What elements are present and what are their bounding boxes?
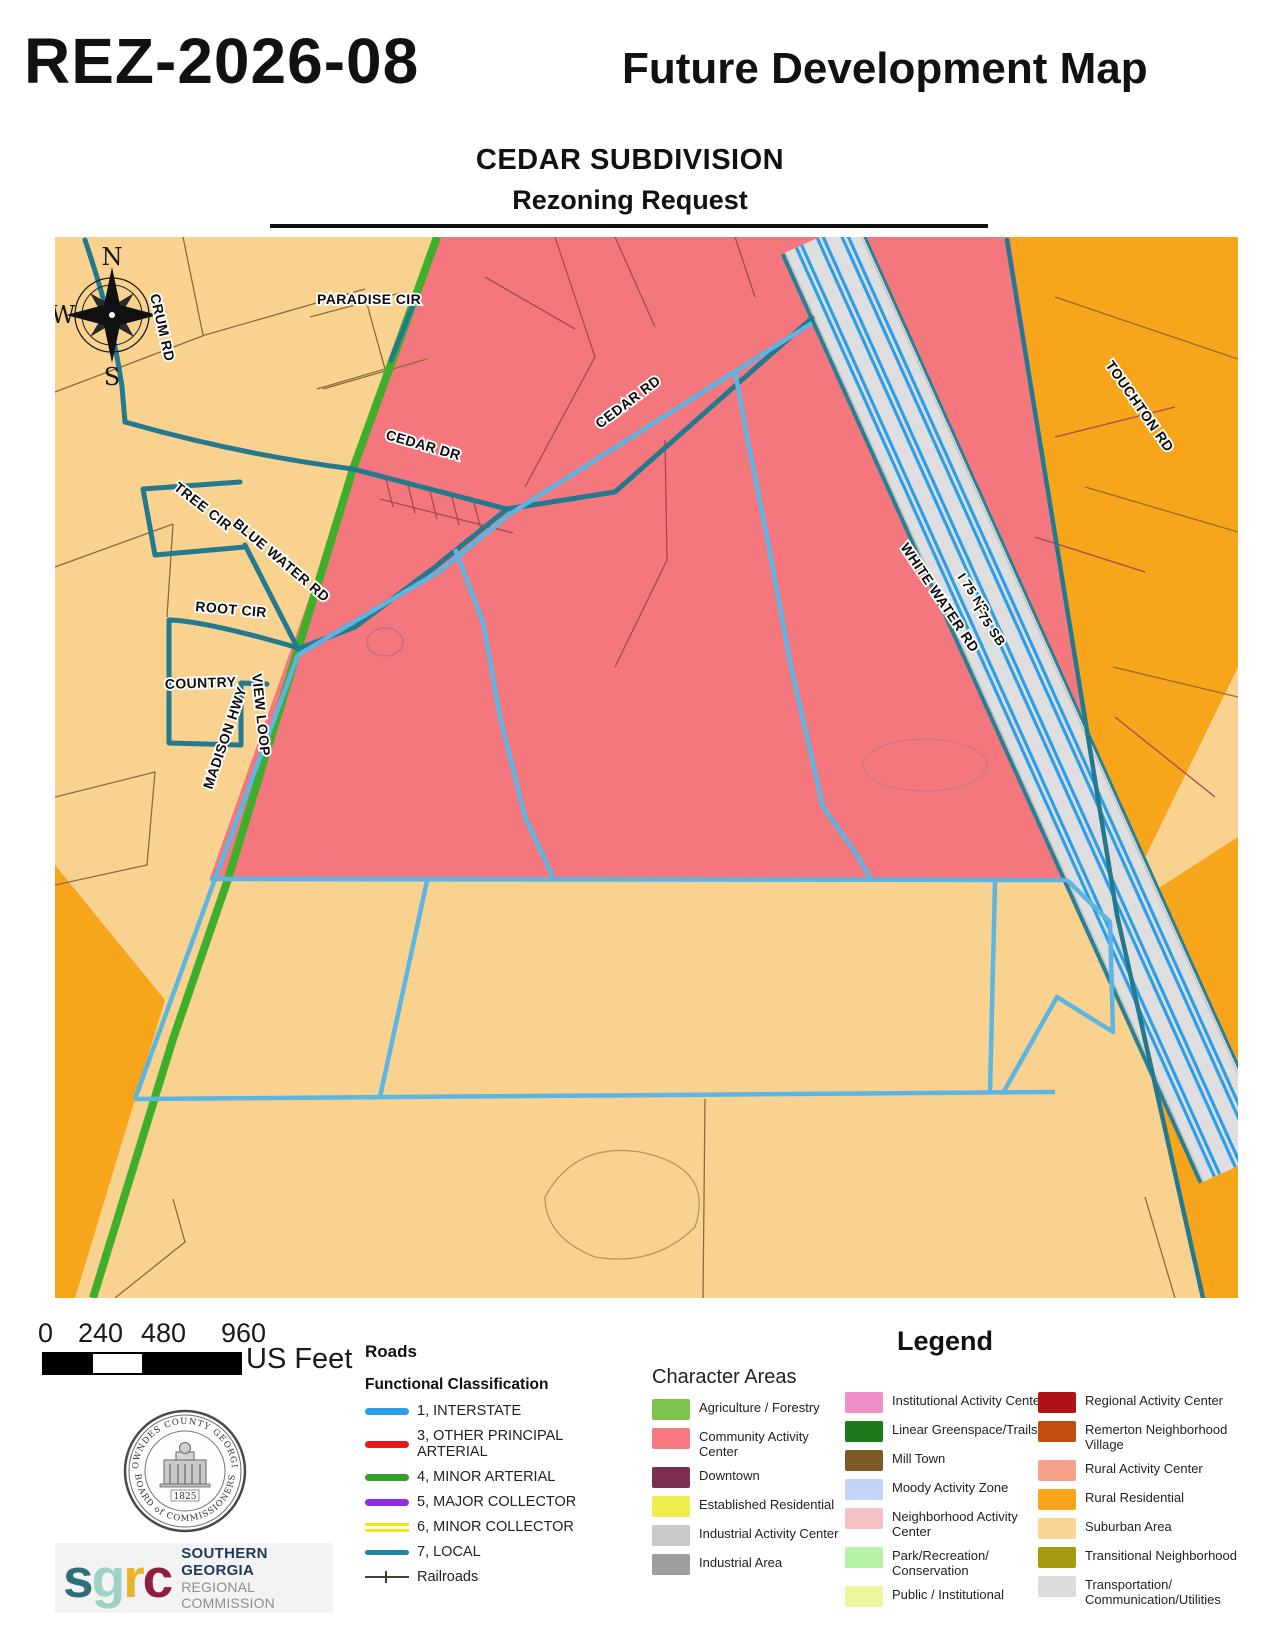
legend-item: Rural Activity Center bbox=[1038, 1460, 1258, 1481]
scale-segment bbox=[93, 1354, 142, 1373]
scale-tick: 480 bbox=[141, 1318, 186, 1349]
color-swatch bbox=[1038, 1518, 1076, 1539]
future-development-map: N S W PARADISE CIR CRUM RD CEDAR DR CEDA… bbox=[55, 237, 1238, 1298]
label-paradise-cir: PARADISE CIR bbox=[317, 291, 421, 307]
railroads-line-swatch bbox=[365, 1576, 409, 1578]
legend-item: Industrial Area bbox=[652, 1554, 842, 1575]
legend-row-minor-collector: 6, MINOR COLLECTOR bbox=[365, 1519, 625, 1535]
legend-row-railroads: Railroads bbox=[365, 1569, 625, 1585]
interstate-line-swatch bbox=[365, 1408, 409, 1415]
sgrc-name: SOUTHERN GEORGIA REGIONAL COMMISSION bbox=[181, 1545, 333, 1611]
roads-legend-title: Roads bbox=[365, 1342, 625, 1362]
character-areas-column-1: Character Areas Agriculture / Forestry C… bbox=[652, 1366, 842, 1583]
color-swatch bbox=[1038, 1547, 1076, 1568]
legend-item: Mill Town bbox=[845, 1450, 1045, 1471]
color-swatch bbox=[652, 1467, 690, 1488]
legend-item: Institutional Activity Center bbox=[845, 1392, 1045, 1413]
legend-item: Established Residential bbox=[652, 1496, 842, 1517]
color-swatch bbox=[652, 1399, 690, 1420]
case-number: REZ-2026-08 bbox=[24, 24, 419, 98]
page-title: Future Development Map bbox=[622, 44, 1148, 94]
scale-tick: 240 bbox=[78, 1318, 123, 1349]
minor-arterial-line-swatch bbox=[365, 1474, 409, 1481]
color-swatch bbox=[845, 1450, 883, 1471]
principal-arterial-line-swatch bbox=[365, 1441, 409, 1448]
compass-south: S bbox=[104, 363, 120, 391]
legend-item: Agriculture / Forestry bbox=[652, 1399, 842, 1420]
color-swatch bbox=[652, 1428, 690, 1449]
legend-item: Remerton Neighborhood Village bbox=[1038, 1421, 1258, 1452]
local-line-swatch bbox=[365, 1550, 409, 1555]
color-swatch bbox=[1038, 1489, 1076, 1510]
color-swatch bbox=[1038, 1460, 1076, 1481]
legend-row-minor-arterial: 4, MINOR ARTERIAL bbox=[365, 1469, 625, 1485]
character-areas-title: Character Areas bbox=[652, 1366, 842, 1389]
legend-title: Legend bbox=[845, 1326, 1045, 1357]
character-areas-column-3: Regional Activity Center Remerton Neighb… bbox=[1038, 1392, 1258, 1615]
sgrc-logo: sgrc SOUTHERN GEORGIA REGIONAL COMMISSIO… bbox=[55, 1543, 333, 1613]
legend-item: Rural Residential bbox=[1038, 1489, 1258, 1510]
subtitle-underline bbox=[270, 224, 988, 228]
lowndes-county-seal: LOWNDES COUNTY GEORGIA BOARD of COMMISSI… bbox=[122, 1408, 248, 1534]
scale-tick: 0 bbox=[38, 1318, 53, 1349]
compass-west: W bbox=[55, 301, 76, 329]
legend-item: Regional Activity Center bbox=[1038, 1392, 1258, 1413]
color-swatch bbox=[845, 1547, 883, 1568]
legend-item: Industrial Activity Center bbox=[652, 1525, 842, 1546]
legend-row-interstate: 1, INTERSTATE bbox=[365, 1403, 625, 1419]
color-swatch bbox=[652, 1554, 690, 1575]
legend-item: Transitional Neighborhood bbox=[1038, 1547, 1258, 1568]
color-swatch bbox=[845, 1421, 883, 1442]
scale-unit: US Feet bbox=[246, 1343, 352, 1376]
legend-item: Public / Institutional bbox=[845, 1586, 1045, 1607]
roads-legend-subtitle: Functional Classification bbox=[365, 1376, 625, 1394]
subtitle-rezoning: Rezoning Request bbox=[270, 185, 990, 216]
color-swatch bbox=[845, 1508, 883, 1529]
scale-bar bbox=[42, 1352, 242, 1375]
seal-year: 1825 bbox=[174, 1492, 197, 1502]
color-swatch bbox=[1038, 1392, 1076, 1413]
label-country: COUNTRY bbox=[165, 674, 237, 692]
color-swatch bbox=[1038, 1576, 1076, 1597]
sgrc-wordmark: sgrc bbox=[63, 1553, 171, 1603]
legend-item: Neighborhood Activity Center bbox=[845, 1508, 1045, 1539]
color-swatch bbox=[845, 1479, 883, 1500]
minor-collector-line-swatch bbox=[365, 1523, 409, 1532]
legend-item: Downtown bbox=[652, 1467, 842, 1488]
legend-item: Transportation/ Communication/Utilities bbox=[1038, 1576, 1258, 1607]
color-swatch bbox=[845, 1392, 883, 1413]
legend-item: Park/Recreation/ Conservation bbox=[845, 1547, 1045, 1578]
character-areas-column-2: Institutional Activity Center Linear Gre… bbox=[845, 1392, 1045, 1615]
legend-row-principal-arterial: 3, OTHER PRINCIPAL ARTERIAL bbox=[365, 1428, 625, 1460]
compass-north: N bbox=[102, 243, 123, 271]
roads-legend: Roads Functional Classification 1, INTER… bbox=[365, 1342, 625, 1594]
scale-segment bbox=[44, 1354, 93, 1373]
color-swatch bbox=[652, 1496, 690, 1517]
color-swatch bbox=[1038, 1421, 1076, 1442]
legend-item: Suburban Area bbox=[1038, 1518, 1258, 1539]
legend-item: Linear Greenspace/Trails bbox=[845, 1421, 1045, 1442]
color-swatch bbox=[652, 1525, 690, 1546]
color-swatch bbox=[845, 1586, 883, 1607]
scale-segment bbox=[142, 1354, 240, 1373]
legend-item: Community Activity Center bbox=[652, 1428, 842, 1459]
subtitle-subdivision: CEDAR SUBDIVISION bbox=[270, 144, 990, 177]
legend-item: Moody Activity Zone bbox=[845, 1479, 1045, 1500]
major-collector-line-swatch bbox=[365, 1499, 409, 1506]
legend-row-local: 7, LOCAL bbox=[365, 1544, 625, 1560]
legend-row-major-collector: 5, MAJOR COLLECTOR bbox=[365, 1494, 625, 1510]
